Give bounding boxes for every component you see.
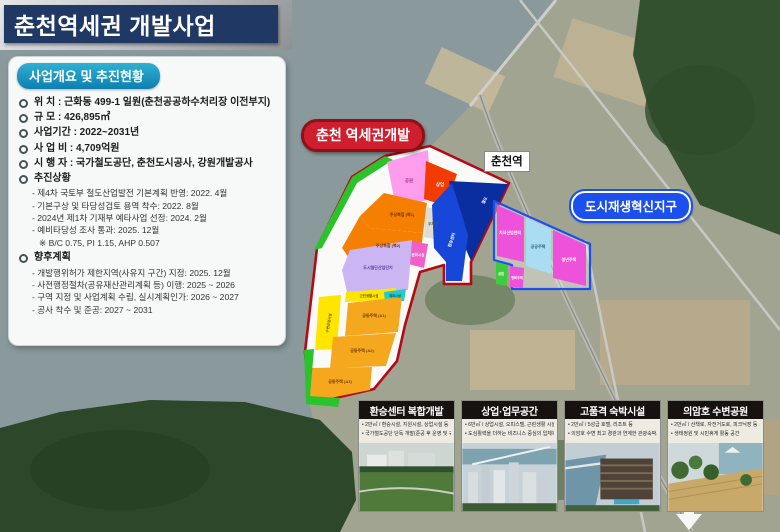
- card-transfer-center: 환승센터 복합개발 • 2만㎡ / 환승시설, 지원시설, 상업시설 등 • 국…: [358, 400, 455, 512]
- card-bullets: • 2만㎡ / 5성급 호텔, 리조트 등 • 의암호 수변 최고 경관과 연계…: [565, 419, 660, 443]
- page-title: 춘천역세권 개발사업: [4, 5, 278, 43]
- svg-text:근린생활시설: 근린생활시설: [360, 293, 379, 298]
- bullet-icon: [19, 129, 28, 138]
- svg-text:도시첨단산업단지: 도시첨단산업단지: [363, 264, 393, 270]
- bullet-icon: [19, 160, 28, 169]
- overview-item: 시 행 자 : 국가철도공단, 춘천도시공사, 강원개발공사: [17, 157, 277, 170]
- feature-cards: 환승센터 복합개발 • 2만㎡ / 환승시설, 지원시설, 상업시설 등 • 국…: [358, 400, 764, 512]
- future-item: - 구역 지정 및 사업계획 수립, 실시계획인가: 2026 ~ 2027: [32, 291, 277, 303]
- project-overview-panel: 사업개요 및 추진현황 위 치 : 근화동 499-1 일원(춘천공공하수처리장…: [8, 56, 286, 346]
- progress-note: ※ B/C 0.75, PI 1.15, AHP 0.507: [39, 237, 277, 249]
- waterfront-park-rendering: [668, 443, 763, 511]
- svg-text:주상복합 (복1): 주상복합 (복1): [390, 211, 415, 217]
- svg-text:공동주택 (A2): 공동주택 (A2): [350, 347, 374, 353]
- overview-item: 사 업 비 : 4,709억원: [17, 142, 277, 155]
- card-title: 고품격 숙박시설: [565, 401, 660, 419]
- bullet-icon: [19, 175, 28, 184]
- svg-text:지식산업센터: 지식산업센터: [499, 229, 521, 235]
- svg-text:상업: 상업: [436, 181, 444, 188]
- panel-header: 사업개요 및 추진현황: [17, 63, 160, 89]
- future-item: - 사전행정절차(공유재산관리계획 등) 이행: 2025 ~ 2026: [32, 279, 277, 291]
- card-waterfront-park: 의암호 수변공원 • 2만㎡ / 산책로, 자전거도로, 피크닉장 등 • 생태…: [667, 400, 764, 512]
- station-label: 춘천역: [484, 151, 530, 172]
- svg-text:문화시설: 문화시설: [412, 252, 425, 257]
- card-commercial: 상업·업무공간 • 6만㎡ / 상업시설, 오피스텔, 근린생활 시설 등 • …: [461, 400, 558, 512]
- bullet-icon: [19, 99, 28, 108]
- svg-text:주상복합 (복2): 주상복합 (복2): [376, 242, 401, 248]
- progress-item: - 2024년 제1차 기재부 예타사업 선정: 2024. 2월: [32, 212, 277, 224]
- site-badge: 춘천 역세권개발: [301, 119, 425, 152]
- bullet-icon: [19, 145, 28, 154]
- svg-text:행복주택: 행복주택: [511, 275, 523, 280]
- card-bullets: • 6만㎡ / 상업시설, 오피스텔, 근린생활 시설 등 • 도심활력을 더하…: [462, 419, 557, 443]
- hotel-rendering: [565, 443, 660, 511]
- card-title: 의암호 수변공원: [668, 401, 763, 419]
- svg-text:공동주택 (A1): 공동주택 (A1): [362, 312, 386, 318]
- card-hotel: 고품격 숙박시설 • 2만㎡ / 5성급 호텔, 리조트 등 • 의암호 수변 …: [564, 400, 661, 512]
- overview-item: 사업기간 : 2022~2031년: [17, 126, 277, 139]
- bullet-icon: [19, 114, 28, 123]
- commercial-district-rendering: [462, 443, 557, 511]
- future-item: - 공사 착수 및 준공: 2027 ~ 2031: [32, 304, 277, 316]
- poster-canvas: 공원 상업 주상복합 (복1) 주상복합 (복2) 주차장 문화시설 철도 환승…: [0, 0, 780, 532]
- overview-item: 위 치 : 근화동 499-1 일원(춘천공공하수처리장 이전부지): [17, 96, 277, 109]
- svg-text:공동주택 (A3): 공동주택 (A3): [328, 378, 352, 384]
- card-bullets: • 2만㎡ / 환승시설, 지원시설, 상업시설 등 • 국가철도공단 단독 개…: [359, 419, 454, 443]
- card-bullets: • 2만㎡ / 산책로, 자전거도로, 피크닉장 등 • 생태정원 및 시민휴게…: [668, 419, 763, 443]
- card-title: 환승센터 복합개발: [359, 401, 454, 419]
- transfer-center-rendering: [359, 443, 454, 511]
- future-item: - 개발행위허가 제한지역(사유지 구간) 지정: 2025. 12월: [32, 267, 277, 279]
- progress-item: - 기본구상 및 타당성검토 용역 착수: 2022. 8월: [32, 200, 277, 212]
- svg-text:청년주택: 청년주택: [562, 256, 577, 262]
- svg-text:공원: 공원: [498, 271, 504, 276]
- district-badge: 도시재생혁신지구: [571, 191, 691, 221]
- overview-item: 규 모 : 426,895㎡: [17, 111, 277, 124]
- svg-text:주차장: 주차장: [428, 221, 438, 226]
- svg-text:공원: 공원: [405, 177, 413, 184]
- svg-text:공공주택: 공공주택: [531, 243, 546, 249]
- progress-item: - 예비타당성 조사 통과: 2025. 12월: [32, 224, 277, 236]
- future-section-title: 향후계획: [17, 251, 277, 264]
- svg-text:체육시설: 체육시설: [389, 293, 401, 298]
- bullet-icon: [19, 254, 28, 263]
- progress-section-title: 추진상황: [17, 172, 277, 185]
- progress-item: - 제4차 국토부 철도산업발전 기본계획 반영: 2022. 4월: [32, 187, 277, 199]
- card-title: 상업·업무공간: [462, 401, 557, 419]
